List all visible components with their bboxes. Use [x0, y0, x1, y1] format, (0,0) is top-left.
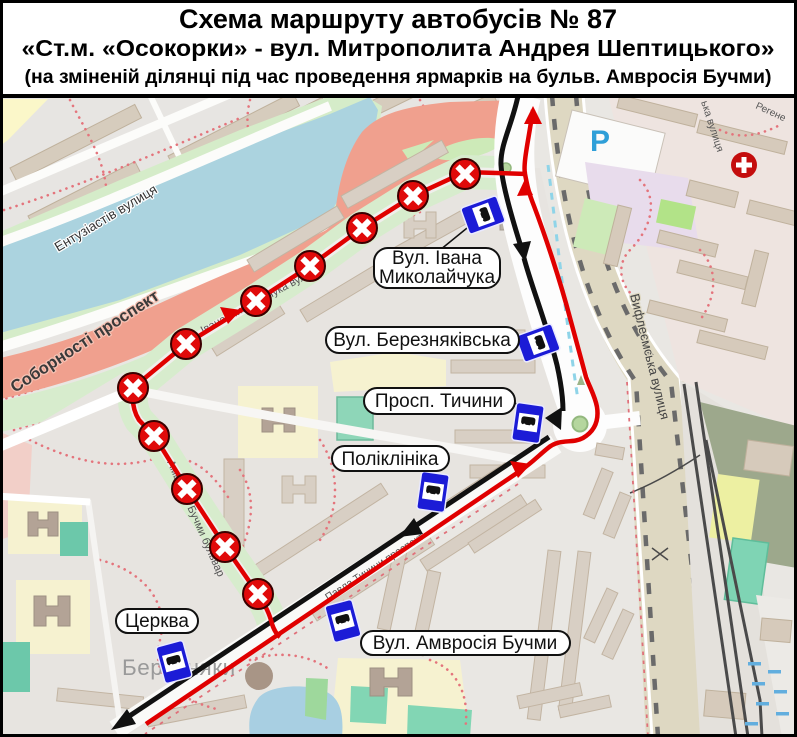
- svg-text:Церква: Церква: [125, 611, 189, 632]
- svg-text:Вул. Березняківська: Вул. Березняківська: [333, 330, 511, 351]
- svg-text:Просп. Тичини: Просп. Тичини: [375, 391, 503, 412]
- svg-text:Поліклініка: Поліклініка: [342, 449, 439, 470]
- svg-text:P: P: [590, 125, 610, 158]
- svg-text:Вул. Амвросія Бучми: Вул. Амвросія Бучми: [373, 633, 558, 654]
- svg-text:(на зміненій ділянці під час п: (на зміненій ділянці під час проведення …: [25, 66, 772, 88]
- svg-text:Вул. Івана: Вул. Івана: [392, 248, 482, 269]
- svg-text:Миколайчука: Миколайчука: [379, 267, 496, 288]
- svg-text:«Ст.м. «Осокорки» - вул. Митро: «Ст.м. «Осокорки» - вул. Митрополита Анд…: [22, 35, 775, 61]
- svg-text:Схема маршруту автобусів № 87: Схема маршруту автобусів № 87: [179, 4, 617, 34]
